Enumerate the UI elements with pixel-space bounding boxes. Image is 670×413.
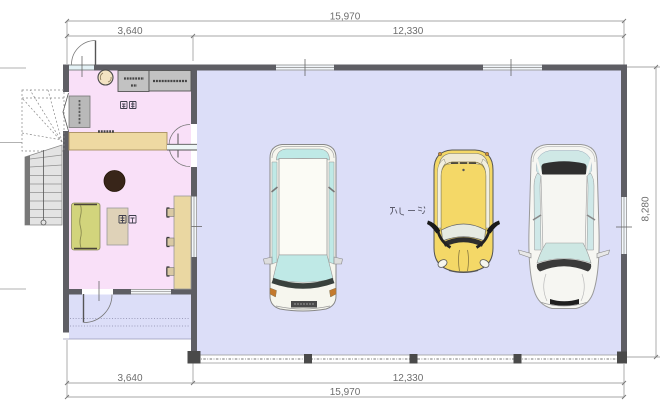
svg-text:12,330: 12,330 [393,26,424,37]
svg-text:8,280: 8,280 [641,196,652,221]
svg-text:3,640: 3,640 [117,373,142,384]
svg-text:12,330: 12,330 [393,373,424,384]
svg-text:15,970: 15,970 [330,387,361,398]
svg-text:15,970: 15,970 [330,12,361,23]
svg-text:3,640: 3,640 [117,26,142,37]
